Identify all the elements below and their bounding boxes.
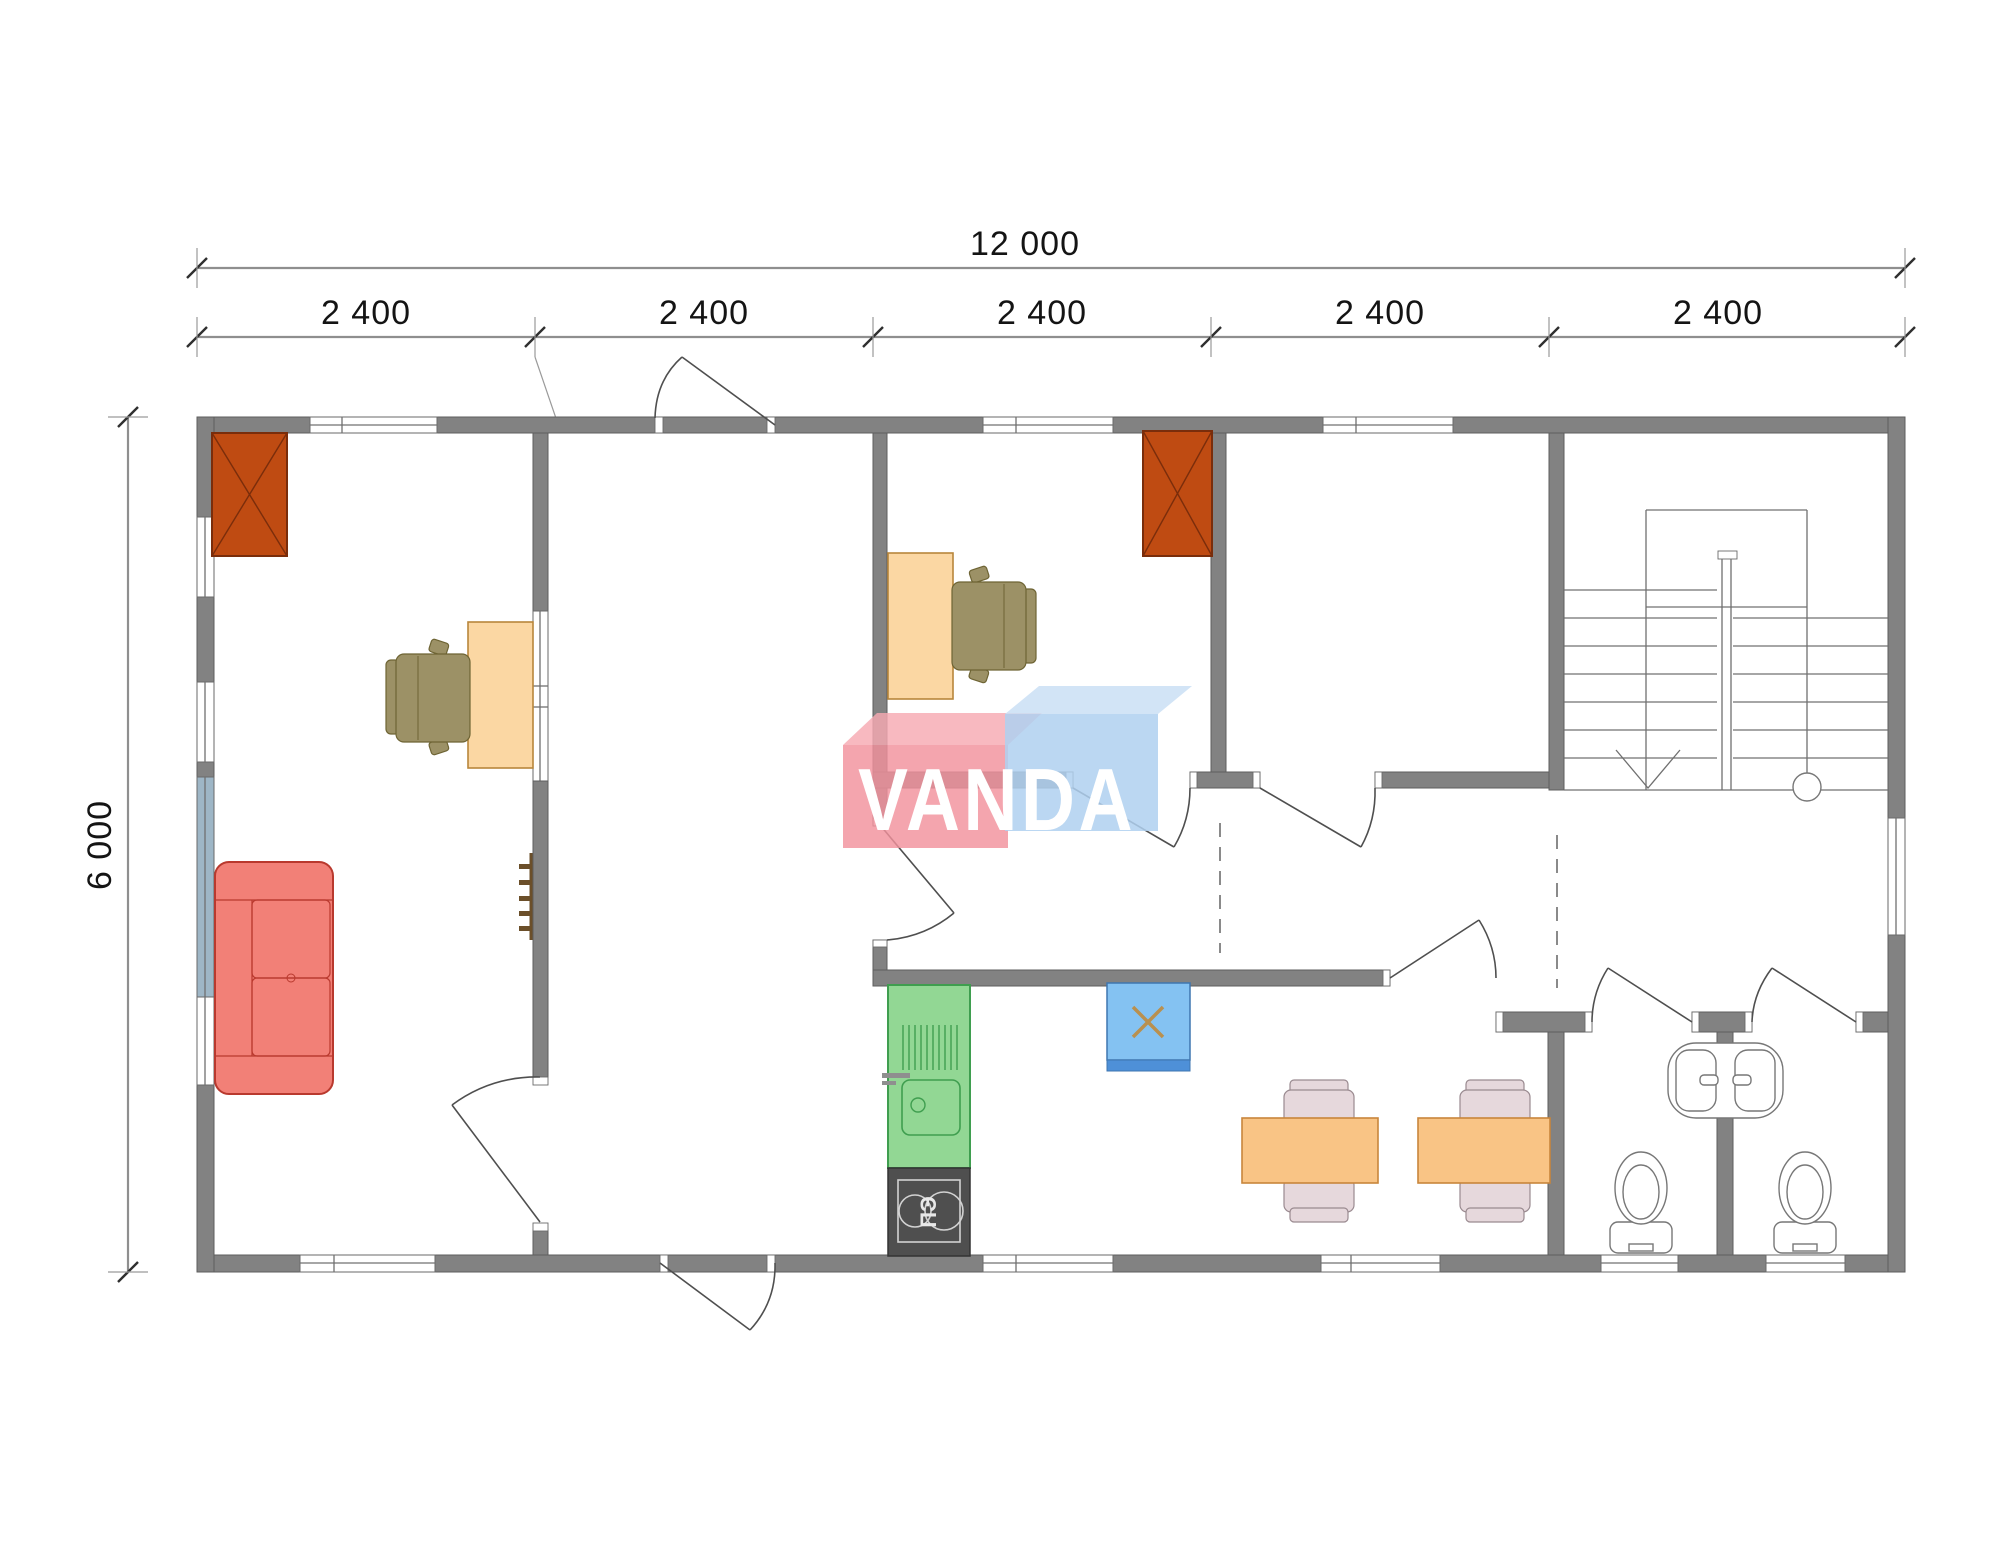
- door-jamb: [1585, 1012, 1592, 1032]
- dining-table: [1242, 1118, 1378, 1183]
- desk-office: [888, 553, 953, 699]
- door-jamb: [1375, 772, 1382, 788]
- window-left-glass-panel: [197, 777, 214, 997]
- floor-plan-drawing: 12 000 2 400 2 400 2 400 2 400 2 400: [0, 0, 2000, 1563]
- stairs: [1564, 510, 1888, 801]
- segment-label-2: 2 400: [659, 294, 749, 332]
- door-jamb: [533, 1077, 548, 1085]
- stair-newel-circle: [1793, 773, 1821, 801]
- door-jamb: [1496, 1012, 1503, 1032]
- toilet-left: [1610, 1152, 1672, 1253]
- window-bottom-wc-right: [1766, 1255, 1845, 1272]
- cafe-door: [1390, 920, 1496, 978]
- window-right-1: [1888, 818, 1905, 935]
- dining-chair: [1460, 1178, 1530, 1222]
- toilet-right: [1774, 1152, 1836, 1253]
- door-jamb: [873, 940, 887, 947]
- desk-left-room: [468, 622, 533, 768]
- door-jamb: [1383, 970, 1390, 986]
- window-top-2: [983, 417, 1113, 433]
- left-room-door: [452, 1077, 540, 1222]
- electric-stove: ПЭ: [888, 1168, 970, 1256]
- wall-stair-west: [1549, 433, 1564, 790]
- meeting-south-wall: [1375, 772, 1556, 788]
- washbasin-double: [1668, 1043, 1783, 1118]
- watermark-logo: VANDA: [843, 686, 1192, 849]
- door-jamb: [1856, 1012, 1863, 1032]
- boiler: [1107, 983, 1190, 1071]
- dining-table: [1418, 1118, 1550, 1183]
- door-jamb: [1692, 1012, 1699, 1032]
- chimney-office: [1143, 431, 1212, 556]
- window-bottom-wc-left: [1601, 1255, 1678, 1272]
- segment-ticks: [187, 317, 1915, 430]
- wall-1-stub: [533, 1230, 548, 1255]
- faucet-icon: [1700, 1075, 1718, 1085]
- interior-window-wall-1: [533, 611, 548, 781]
- dining-set-2: [1418, 1080, 1550, 1222]
- watermark-text: VANDA: [858, 750, 1136, 849]
- dining-chair: [1284, 1178, 1354, 1222]
- meeting-corridor-door: [1260, 788, 1375, 847]
- stair-center-rail: [1718, 551, 1737, 790]
- segment-label-5: 2 400: [1673, 294, 1763, 332]
- faucet-icon: [882, 1073, 910, 1078]
- door-jamb: [655, 417, 663, 433]
- window-bottom-2: [983, 1255, 1113, 1272]
- floor-plan-page: 12 000 2 400 2 400 2 400 2 400 2 400: [0, 0, 2000, 1563]
- window-left-2: [197, 682, 214, 762]
- sofa: [215, 862, 333, 1094]
- height-label: 6 000: [81, 800, 119, 890]
- stair-treads-right: [1733, 618, 1888, 758]
- door-jamb: [1745, 1012, 1752, 1032]
- segment-label-3: 2 400: [997, 294, 1087, 332]
- faucet-icon: [1733, 1075, 1751, 1085]
- wc-right-door: [1752, 968, 1856, 1022]
- coat-hooks: [519, 853, 531, 940]
- door-jamb: [767, 1255, 775, 1272]
- stair-treads-left: [1564, 590, 1717, 758]
- wc-left-door: [1592, 968, 1692, 1022]
- corridor-wall-stub: [1190, 772, 1260, 788]
- window-left-3: [197, 997, 214, 1085]
- faucet-icon: [882, 1081, 896, 1085]
- total-width-label: 12 000: [970, 225, 1080, 263]
- window-top-1: [310, 417, 437, 433]
- office-chair-left-room: [386, 639, 470, 756]
- wall-1-upper: [533, 433, 548, 611]
- door-jamb: [1253, 772, 1260, 788]
- window-bottom-3: [1321, 1255, 1440, 1272]
- segment-label-1: 2 400: [321, 294, 411, 332]
- wc-north-wall-2: [1692, 1012, 1752, 1032]
- door-jamb: [1190, 772, 1197, 788]
- office-chair-office: [952, 566, 1036, 684]
- wc-north-wall-1: [1496, 1012, 1592, 1032]
- kitchen-sink-counter: [882, 985, 970, 1168]
- stair-down-arrow-icon: [1616, 750, 1680, 788]
- window-top-3: [1323, 417, 1453, 433]
- entrance-door-top: [655, 357, 775, 425]
- stove-label: ПЭ: [916, 1196, 941, 1227]
- entrance-door-bottom: [660, 1263, 775, 1330]
- wall-3: [1211, 433, 1226, 772]
- door-jamb: [533, 1223, 548, 1231]
- wall-1-middle: [533, 781, 548, 1077]
- chimney-left: [212, 433, 287, 556]
- dining-set-1: [1242, 1080, 1378, 1222]
- segment-label-4: 2 400: [1335, 294, 1425, 332]
- window-bottom-1: [300, 1255, 435, 1272]
